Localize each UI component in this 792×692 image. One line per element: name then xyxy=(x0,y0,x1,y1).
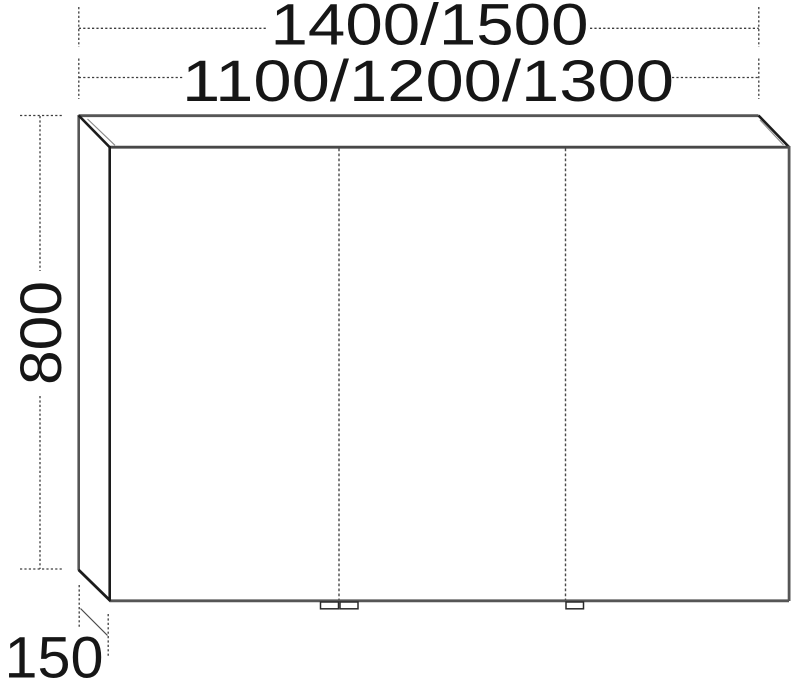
svg-text:150: 150 xyxy=(5,626,104,691)
svg-text:800: 800 xyxy=(9,281,74,385)
svg-text:1100/1200/1300: 1100/1200/1300 xyxy=(182,49,674,114)
